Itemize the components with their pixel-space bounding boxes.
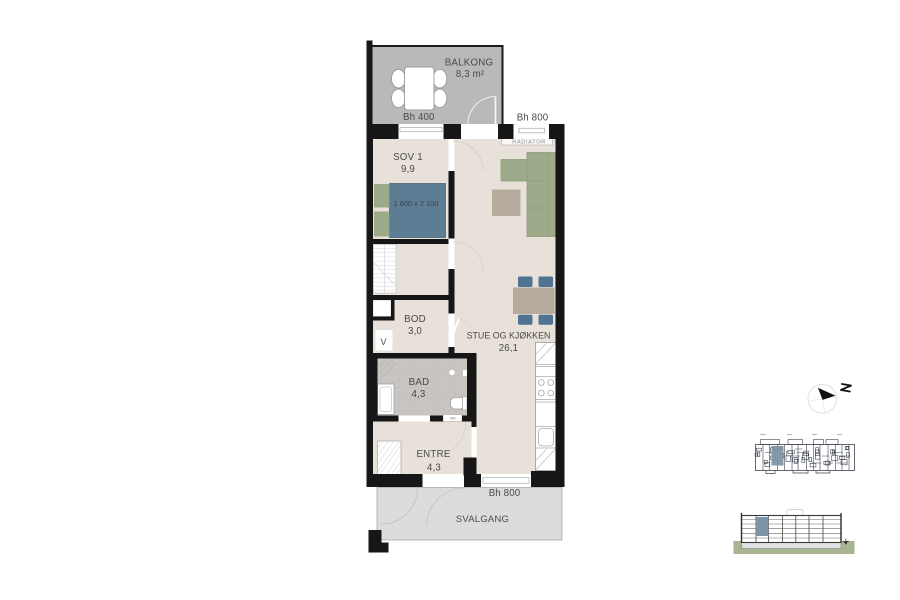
svg-text:Bh 400: Bh 400: [403, 112, 435, 123]
svg-text:8,3 m²: 8,3 m²: [456, 69, 485, 80]
svg-text:1 600 x 2 100: 1 600 x 2 100: [394, 199, 439, 208]
svg-text:VM: VM: [450, 416, 456, 421]
svg-text:9,9: 9,9: [401, 164, 415, 175]
svg-text:26,1: 26,1: [499, 343, 518, 354]
svg-text:Bh 800: Bh 800: [517, 113, 549, 124]
svg-text:V: V: [380, 337, 386, 347]
svg-text:Bh 800: Bh 800: [489, 488, 521, 499]
svg-text:SOV 1: SOV 1: [393, 152, 423, 163]
svg-text:3,0: 3,0: [408, 326, 422, 337]
svg-text:BALKONG: BALKONG: [445, 58, 494, 69]
svg-text:4,3: 4,3: [427, 463, 441, 474]
svg-text:STUE OG KJØKKEN: STUE OG KJØKKEN: [467, 331, 551, 341]
svg-text:BOD: BOD: [404, 314, 426, 325]
svg-text:ENTRE: ENTRE: [416, 449, 450, 460]
svg-text:SVALGANG: SVALGANG: [456, 513, 509, 524]
svg-text:RADIATOR: RADIATOR: [512, 140, 546, 146]
svg-text:BAD: BAD: [409, 377, 430, 388]
svg-text:4,3: 4,3: [412, 389, 426, 400]
